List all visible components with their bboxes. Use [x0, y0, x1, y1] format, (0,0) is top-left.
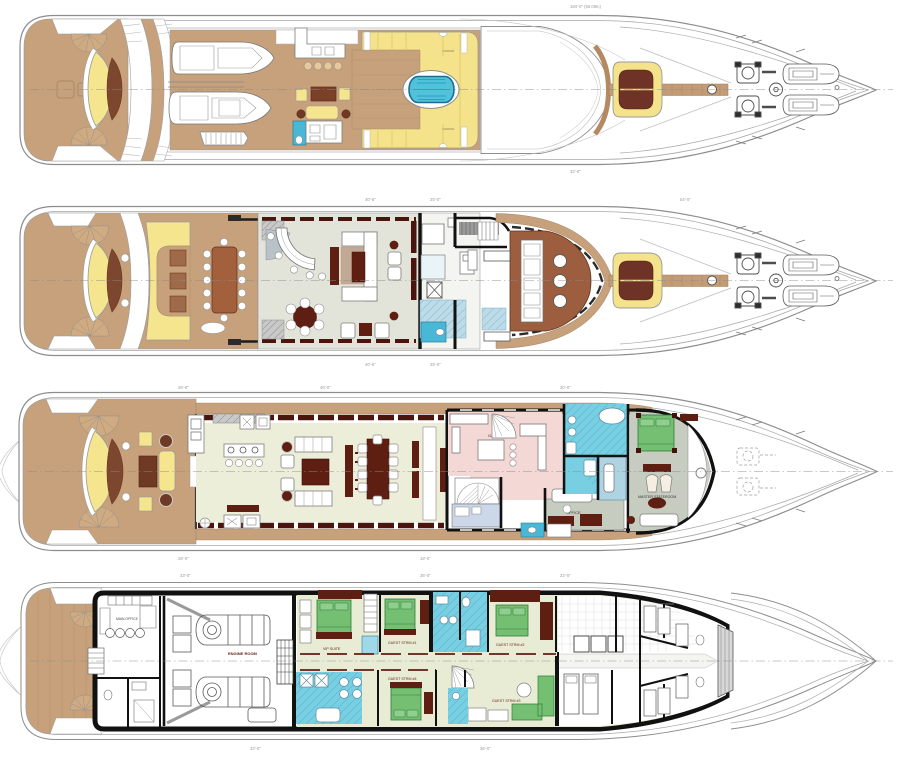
svg-text:30'-0": 30'-0" [560, 385, 571, 390]
svg-text:SUNPAD: SUNPAD [442, 127, 455, 131]
svg-text:26'-0": 26'-0" [178, 385, 189, 390]
svg-text:18'-0": 18'-0" [420, 556, 431, 561]
svg-text:25'-0": 25'-0" [430, 197, 441, 202]
svg-text:MAIN OFFICE: MAIN OFFICE [116, 617, 139, 621]
svg-text:184'-0" (56.08m): 184'-0" (56.08m) [570, 4, 602, 9]
svg-text:40'-6": 40'-6" [365, 362, 376, 367]
svg-text:GUEST STRM #1: GUEST STRM #1 [388, 641, 417, 645]
svg-text:SUNPAD: SUNPAD [442, 49, 455, 53]
svg-text:ENGINE ROOM: ENGINE ROOM [228, 651, 258, 656]
svg-text:26'-0": 26'-0" [178, 556, 189, 561]
svg-text:33'-0": 33'-0" [180, 573, 191, 578]
svg-text:36'-0": 36'-0" [420, 573, 431, 578]
svg-text:40'-6": 40'-6" [365, 197, 376, 202]
svg-text:33'-0": 33'-0" [250, 746, 261, 751]
svg-text:25'-0": 25'-0" [430, 362, 441, 367]
svg-text:36'-0": 36'-0" [480, 746, 491, 751]
svg-text:GUEST STRM #4: GUEST STRM #4 [388, 677, 417, 681]
svg-text:GUEST STRM #2: GUEST STRM #2 [496, 643, 525, 647]
svg-text:GUEST STRM #3: GUEST STRM #3 [492, 699, 521, 703]
svg-text:46'-0": 46'-0" [320, 385, 331, 390]
svg-text:MASTER STATEROOM: MASTER STATEROOM [638, 495, 676, 499]
svg-text:54'-0": 54'-0" [680, 197, 691, 202]
svg-text:32'-0": 32'-0" [570, 169, 581, 174]
svg-text:VIP SUITE: VIP SUITE [323, 647, 341, 651]
svg-text:22'-0": 22'-0" [560, 573, 571, 578]
